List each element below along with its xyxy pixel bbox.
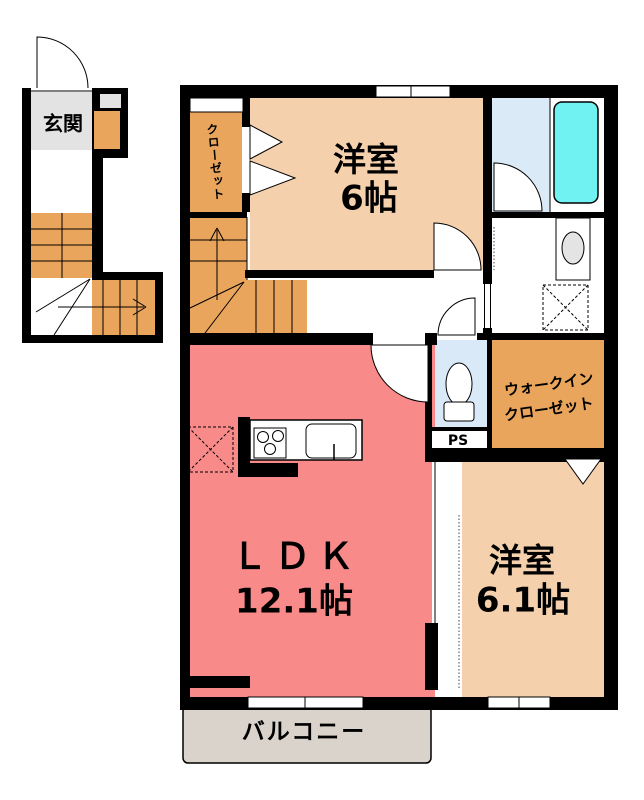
genkan-label: 玄関 [43,113,83,136]
bedroom2-name: 洋室 [489,542,555,580]
entrance-door-icon [37,37,88,88]
gas-stove-icon [254,428,286,458]
toilet-icon [444,363,474,421]
ldk-name: ＬＤＫ [231,536,360,577]
window [248,697,363,708]
balcony-label: バルコニー [242,719,367,745]
floorplan: 玄関 クローゼット 洋室 6帖 ＬＤＫ 12.1帖 洋室 6.1帖 ウォークイン… [0,0,644,800]
washing-machine-space-icon [543,285,588,330]
bathtub-icon [554,102,598,203]
shoe-cabinet [94,111,120,149]
window [488,697,550,708]
staircase-2f-floor [190,217,247,337]
ldk-size: 12.1帖 [235,582,353,621]
ldk-floor [190,345,435,698]
wall [92,158,103,275]
wall [22,335,163,343]
wall [155,272,163,343]
wall [22,88,31,343]
meter-box [100,94,121,108]
ps-label: PS [448,433,468,449]
closet-niche [190,98,243,112]
entrance-unit [22,37,163,343]
wash-basin-icon [556,218,590,280]
wall [92,272,155,280]
window [376,86,450,97]
sliding-door-icon [485,284,491,328]
toilet-door-swing-icon [438,298,475,335]
kitchen-sink-icon [306,424,356,460]
kitchen-counter [250,420,362,460]
bedroom2-size: 6.1帖 [476,581,570,620]
bedroom1-size: 6帖 [340,179,398,218]
bedroom1-name: 洋室 [333,141,399,179]
